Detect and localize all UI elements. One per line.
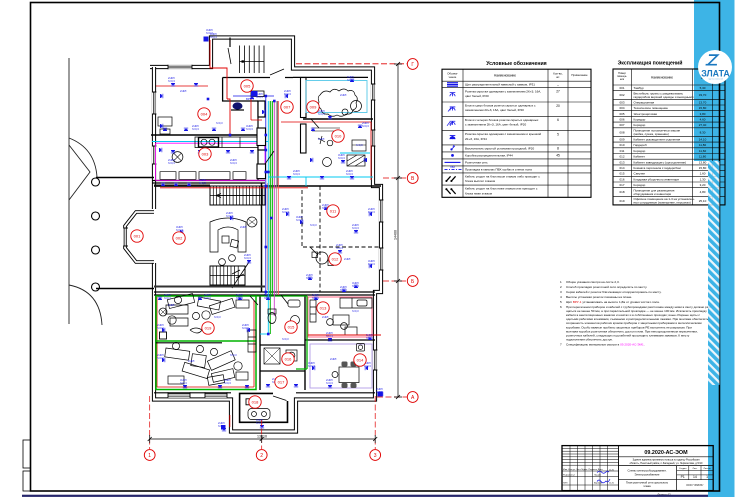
svg-text:004: 004 xyxy=(201,111,208,116)
svg-text:1: 1 xyxy=(148,453,151,459)
svg-text:заземлением 2К+З, 16А, цвет бе: заземлением 2К+З, 16А, цвет белый, IP20 xyxy=(465,108,524,112)
svg-text:3xФЛh=0,3: 3xФЛh=0,3 xyxy=(366,333,373,340)
svg-text:001: 001 xyxy=(134,233,141,238)
svg-text:2xФЛh=0,3: 2xФЛh=0,3 xyxy=(362,121,369,128)
svg-text:018: 018 xyxy=(252,399,259,404)
svg-text:блока ниже этажом: блока ниже этажом xyxy=(465,191,492,195)
svg-text:2xФЛ: 2xФЛ xyxy=(330,357,337,361)
svg-text:016: 016 xyxy=(619,177,624,181)
svg-text:2xФЛh=0,3: 2xФЛh=0,3 xyxy=(293,169,300,176)
svg-text:подключения обеспечить доступ.: подключения обеспечить доступ. xyxy=(566,338,613,342)
svg-text:Розетка скрытая одинарная с за: Розетка скрытая одинарная с заземлением … xyxy=(465,89,541,93)
svg-text:27: 27 xyxy=(556,90,560,94)
svg-text:3xФЛh=0,3: 3xФЛh=0,3 xyxy=(246,124,253,131)
svg-text:009: 009 xyxy=(310,104,317,109)
svg-text:5: 5 xyxy=(557,132,559,136)
svg-text:005: 005 xyxy=(619,112,624,116)
svg-text:2xФЛ: 2xФЛ xyxy=(240,225,247,229)
svg-text:20: 20 xyxy=(556,104,560,108)
svg-text:016: 016 xyxy=(285,356,292,361)
svg-text:002: 002 xyxy=(176,235,183,240)
svg-text:3xФЛh=0,3: 3xФЛh=0,3 xyxy=(236,293,243,300)
svg-text:h=0,3: h=0,3 xyxy=(356,143,363,147)
svg-text:цвет белый, IP20: цвет белый, IP20 xyxy=(465,94,489,98)
svg-text:3xФЛh=0,3: 3xФЛh=0,3 xyxy=(308,361,315,368)
svg-text:–: – xyxy=(557,83,559,87)
svg-text:14: 14 xyxy=(693,475,697,479)
svg-text:019: 019 xyxy=(619,199,624,203)
svg-text:004: 004 xyxy=(619,106,624,110)
svg-text:010: 010 xyxy=(335,133,342,138)
svg-text:1: 1 xyxy=(706,475,708,479)
svg-text:3xФЛh=0,3: 3xФЛh=0,3 xyxy=(206,28,213,35)
svg-text:4,80: 4,80 xyxy=(700,190,706,194)
svg-text:014: 014 xyxy=(357,357,364,362)
svg-text:Щит распределительный навесной: Щит распределительный навесной с замком,… xyxy=(465,83,535,87)
svg-text:3xФЛh=0,3: 3xФЛh=0,3 xyxy=(338,153,345,160)
svg-text:Прокладка в каналах ПВХ трубах: Прокладка в каналах ПВХ трубах в стенах … xyxy=(465,168,532,172)
svg-text:2xФЛh=0,3: 2xФЛh=0,3 xyxy=(336,243,343,250)
svg-text:Щит ВРУ-1 устанавливать на выс: Щит ВРУ-1 устанавливать на высоте 1,8м о… xyxy=(566,300,660,304)
svg-text:Коридор: Коридор xyxy=(634,149,646,153)
svg-text:2: 2 xyxy=(260,453,263,459)
svg-text:002: 002 xyxy=(619,93,624,97)
svg-text:013: 013 xyxy=(320,305,327,310)
svg-text:область, Некотный район, п.Зап: область, Некотный район, п.Западный, ул.… xyxy=(630,462,703,465)
svg-text:2xФЛh=0,3: 2xФЛh=0,3 xyxy=(204,293,211,300)
svg-text:ГИП: ГИП xyxy=(563,483,568,485)
svg-text:Комната персонала с гардеробом: Комната персонала с гардеробом xyxy=(634,166,681,170)
svg-text:Разработал: Разработал xyxy=(563,475,576,477)
svg-text:ООО "ЗЛАТА": ООО "ЗЛАТА" xyxy=(686,483,703,487)
svg-text:13810: 13810 xyxy=(257,434,267,438)
svg-text:Кабель уходит на блок ниже эта: Кабель уходит на блок ниже этажом или пр… xyxy=(465,187,538,191)
svg-text:2xФЛh=0,3: 2xФЛh=0,3 xyxy=(244,253,251,260)
svg-text:3xФЛh=0,3: 3xФЛh=0,3 xyxy=(180,378,187,385)
svg-text:2xФЛh=0,3: 2xФЛh=0,3 xyxy=(326,331,333,338)
svg-text:h=0,3: h=0,3 xyxy=(282,337,289,341)
svg-text:Условные обозначения: Условные обозначения xyxy=(486,60,546,67)
svg-text:Кабинет руководителя отделения: Кабинет руководителя отделения xyxy=(634,137,681,141)
svg-text:6: 6 xyxy=(557,118,559,122)
svg-text:2xФЛh=0,3: 2xФЛh=0,3 xyxy=(282,207,289,214)
svg-text:Обозна-чение: Обозна-чение xyxy=(447,72,458,79)
svg-text:Электроснабжение: Электроснабжение xyxy=(635,472,660,476)
svg-text:012: 012 xyxy=(619,155,624,159)
svg-text:018: 018 xyxy=(619,190,624,194)
svg-text:Коридор: Коридор xyxy=(634,123,646,127)
svg-text:2xФЛh=0,3: 2xФЛh=0,3 xyxy=(368,207,375,214)
svg-text:3xФЛh=0,3: 3xФЛh=0,3 xyxy=(176,225,183,232)
svg-text:2xФЛh=0,3: 2xФЛh=0,3 xyxy=(306,273,313,280)
svg-text:2xФЛh=0,3: 2xФЛh=0,3 xyxy=(157,353,164,360)
svg-text:Тамбур: Тамбур xyxy=(634,86,645,90)
svg-text:ПВХ: ПВХ xyxy=(450,165,455,169)
svg-text:3,20: 3,20 xyxy=(700,183,706,187)
svg-text:Розеточная сеть: Розеточная сеть xyxy=(465,161,488,165)
svg-text:2xФЛ: 2xФЛ xyxy=(322,315,329,319)
svg-text:005: 005 xyxy=(244,83,251,88)
svg-text:блока выплат этажом: блока выплат этажом xyxy=(465,179,495,183)
svg-text:Санузел: Санузел xyxy=(634,172,646,176)
svg-text:1,30: 1,30 xyxy=(700,177,706,181)
svg-text:Гардероб: Гардероб xyxy=(634,143,647,147)
svg-text:Высоты установки розеток показ: Высоты установки розеток показаны на пла… xyxy=(566,295,632,299)
svg-text:этажа: этажа xyxy=(643,485,651,488)
svg-text:015: 015 xyxy=(288,324,295,329)
svg-text:Кабинет заведующего (орготделе: Кабинет заведующего (орготделение) xyxy=(634,160,687,164)
svg-text:007: 007 xyxy=(284,104,291,109)
svg-text:3xФЛh=0,3: 3xФЛh=0,3 xyxy=(256,418,263,425)
svg-text:группа компаний: группа компаний xyxy=(708,78,723,81)
svg-text:003: 003 xyxy=(202,151,209,156)
svg-text:15,80: 15,80 xyxy=(699,166,707,170)
svg-text:017: 017 xyxy=(619,183,624,187)
svg-text:Блок из четырех блоков розеток: Блок из четырех блоков розеток скрытых о… xyxy=(465,118,539,122)
svg-text:Способ прокладки розеточной се: Способ прокладки розеточной сети определ… xyxy=(566,285,647,289)
svg-text:2xФЛ: 2xФЛ xyxy=(344,257,351,261)
svg-text:h=0,3: h=0,3 xyxy=(216,121,223,125)
svg-text:h=0,3: h=0,3 xyxy=(310,223,317,227)
svg-text:2xФЛ: 2xФЛ xyxy=(340,93,347,97)
svg-text:Общие указания смотри на листе: Общие указания смотри на листе 2,3. xyxy=(566,280,620,284)
svg-text:2xФЛh=0,3: 2xФЛh=0,3 xyxy=(230,158,237,165)
svg-text:3xФЛh=0,3: 3xФЛh=0,3 xyxy=(368,259,375,266)
svg-text:013: 013 xyxy=(619,160,624,164)
svg-text:45: 45 xyxy=(556,154,560,158)
svg-text:Серии кабелей с розеток близле: Серии кабелей с розеток близлежащих отко… xyxy=(566,290,662,294)
svg-text:h=0,3: h=0,3 xyxy=(214,315,221,319)
svg-text:011: 011 xyxy=(620,149,625,153)
svg-text:Р1: Р1 xyxy=(681,475,685,479)
svg-text:Розетка скрытая одинарная с за: Розетка скрытая одинарная с заземлением … xyxy=(465,132,541,136)
svg-text:1,60: 1,60 xyxy=(700,172,706,176)
svg-text:6: 6 xyxy=(560,305,562,309)
svg-text:2xФЛh=0,3: 2xФЛh=0,3 xyxy=(318,109,325,116)
svg-text:Наименование: Наименование xyxy=(494,74,516,78)
svg-text:012: 012 xyxy=(332,256,339,261)
svg-text:с заземлением 2К+З, 16А, цвет: с заземлением 2К+З, 16А, цвет белый, IP2… xyxy=(465,123,526,127)
svg-text:8: 8 xyxy=(557,147,559,151)
svg-text:2xФЛh=0,3: 2xФЛh=0,3 xyxy=(157,323,164,330)
svg-text:2xФЛh=0,3: 2xФЛh=0,3 xyxy=(346,169,353,176)
svg-text:2xФЛh=0,3: 2xФЛh=0,3 xyxy=(192,124,199,131)
svg-text:2xФЛh=0,3: 2xФЛh=0,3 xyxy=(168,158,175,165)
svg-text:001: 001 xyxy=(619,86,624,90)
svg-text:Помещение для размещенияоборуд: Помещение для размещенияоборудования и и… xyxy=(634,188,675,196)
svg-text:25,10: 25,10 xyxy=(699,199,707,203)
svg-text:007: 007 xyxy=(619,123,624,127)
svg-text:2: 2 xyxy=(560,285,562,289)
svg-text:Примечание: Примечание xyxy=(571,73,588,77)
svg-text:015: 015 xyxy=(619,172,624,176)
svg-text:2xФЛh=0,3: 2xФЛh=0,3 xyxy=(352,223,359,230)
svg-text:Блок из двух блоков розеток ск: Блок из двух блоков розеток скрытых один… xyxy=(465,104,536,108)
svg-text:Операционная: Операционная xyxy=(634,100,655,104)
svg-text:2xФЛh=0,3: 2xФЛh=0,3 xyxy=(326,378,333,385)
svg-text:2xФЛ: 2xФЛ xyxy=(188,359,195,363)
svg-text:Лист: Лист xyxy=(693,468,698,470)
svg-text:14400: 14400 xyxy=(394,230,398,240)
svg-text:006: 006 xyxy=(619,117,624,121)
svg-text:003: 003 xyxy=(619,100,624,104)
svg-text:3xФЛh=0,3: 3xФЛh=0,3 xyxy=(296,215,303,222)
svg-text:Коридор: Коридор xyxy=(634,117,646,121)
svg-text:014: 014 xyxy=(619,166,624,170)
svg-text:2xФЛh=0,3: 2xФЛh=0,3 xyxy=(168,76,175,83)
svg-text:3: 3 xyxy=(560,290,562,294)
svg-text:Наименование: Наименование xyxy=(651,76,673,80)
svg-text:3xФЛh=0,3: 3xФЛh=0,3 xyxy=(352,281,359,288)
svg-text:2xФЛh=0,3: 2xФЛh=0,3 xyxy=(242,323,249,330)
svg-text:2xФЛh=0,3: 2xФЛh=0,3 xyxy=(224,378,231,385)
svg-text:3xФЛh=0,3: 3xФЛh=0,3 xyxy=(199,178,206,185)
svg-text:Коробка распределительная, IP4: Коробка распределительная, IP44 xyxy=(465,154,513,158)
svg-text:2xФЛ: 2xФЛ xyxy=(180,89,187,93)
svg-text:ЗЛАТА: ЗЛАТА xyxy=(701,68,730,78)
svg-text:Электрощитовая: Электрощитовая xyxy=(634,112,658,116)
svg-text:011: 011 xyxy=(330,208,337,213)
svg-text:Кабель уходит на блок выше эта: Кабель уходит на блок выше этажом либо п… xyxy=(465,175,540,179)
svg-text:2xФЛh=0,3: 2xФЛh=0,3 xyxy=(226,211,233,218)
svg-text:Коридор: Коридор xyxy=(634,183,646,187)
svg-text:008: 008 xyxy=(619,130,624,134)
svg-text:Г: Г xyxy=(411,62,414,68)
svg-text:Выключатель скрытой установки: Выключатель скрытой установки проходной,… xyxy=(465,147,534,151)
svg-text:1: 1 xyxy=(560,280,562,284)
svg-text:2К+З, 16А, IP44: 2К+З, 16А, IP44 xyxy=(465,137,487,141)
svg-text:017: 017 xyxy=(278,379,285,384)
svg-text:4: 4 xyxy=(560,295,562,299)
svg-text:019: 019 xyxy=(205,325,212,330)
svg-text:2xФЛh=0,3: 2xФЛh=0,3 xyxy=(164,293,171,300)
svg-text:2xФЛ: 2xФЛ xyxy=(318,137,325,141)
svg-text:010: 010 xyxy=(619,143,624,147)
svg-text:Офисное помещение на 1-3 на ус: Офисное помещение на 1-3 на установлен-н… xyxy=(634,197,695,205)
svg-text:h=0,3: h=0,3 xyxy=(230,353,237,357)
svg-text:Техническое помещение: Техническое помещение xyxy=(634,106,669,110)
svg-text:План розеточной сети цокольног: План розеточной сети цокольного xyxy=(626,481,669,485)
svg-text:ВРУ-1: ВРУ-1 xyxy=(246,97,254,101)
svg-text:Стадия: Стадия xyxy=(679,468,687,470)
svg-text:7: 7 xyxy=(560,342,562,346)
svg-text:3xФЛh=0,3: 3xФЛh=0,3 xyxy=(347,75,354,82)
svg-text:2xФЛh=0,3: 2xФЛh=0,3 xyxy=(284,89,291,96)
svg-text:09.2020-АС-ЭОМ: 09.2020-АС-ЭОМ xyxy=(644,450,688,456)
svg-text:5: 5 xyxy=(560,300,562,304)
svg-text:009: 009 xyxy=(619,137,624,141)
svg-text:Лашин: Лашин xyxy=(594,475,602,477)
svg-text:2xФЛh=0,3: 2xФЛh=0,3 xyxy=(256,92,263,99)
svg-text:Спецификацию материалов смотри: Спецификацию материалов смотри в 09.2020… xyxy=(566,342,645,346)
svg-text:Кладовая уборочного инвентаря: Кладовая уборочного инвентаря xyxy=(634,177,680,181)
svg-text:Экспликация помещений: Экспликация помещений xyxy=(618,60,683,67)
svg-text:Кабинет: Кабинет xyxy=(634,155,646,159)
svg-text:3: 3 xyxy=(374,453,377,459)
svg-text:3xФЛh=0,3: 3xФЛh=0,3 xyxy=(264,293,271,300)
svg-text:h=0,3: h=0,3 xyxy=(352,309,359,313)
svg-text:2xФЛh=0,3: 2xФЛh=0,3 xyxy=(340,285,347,292)
svg-text:3xФЛh=0,3: 3xФЛh=0,3 xyxy=(312,293,319,300)
svg-text:2xФЛ: 2xФЛ xyxy=(168,303,175,307)
svg-text:Изм. Кол.уч. Лист №док. Подпис: Изм. Кол.уч. Лист №док. Подпись Дата xyxy=(563,468,603,471)
